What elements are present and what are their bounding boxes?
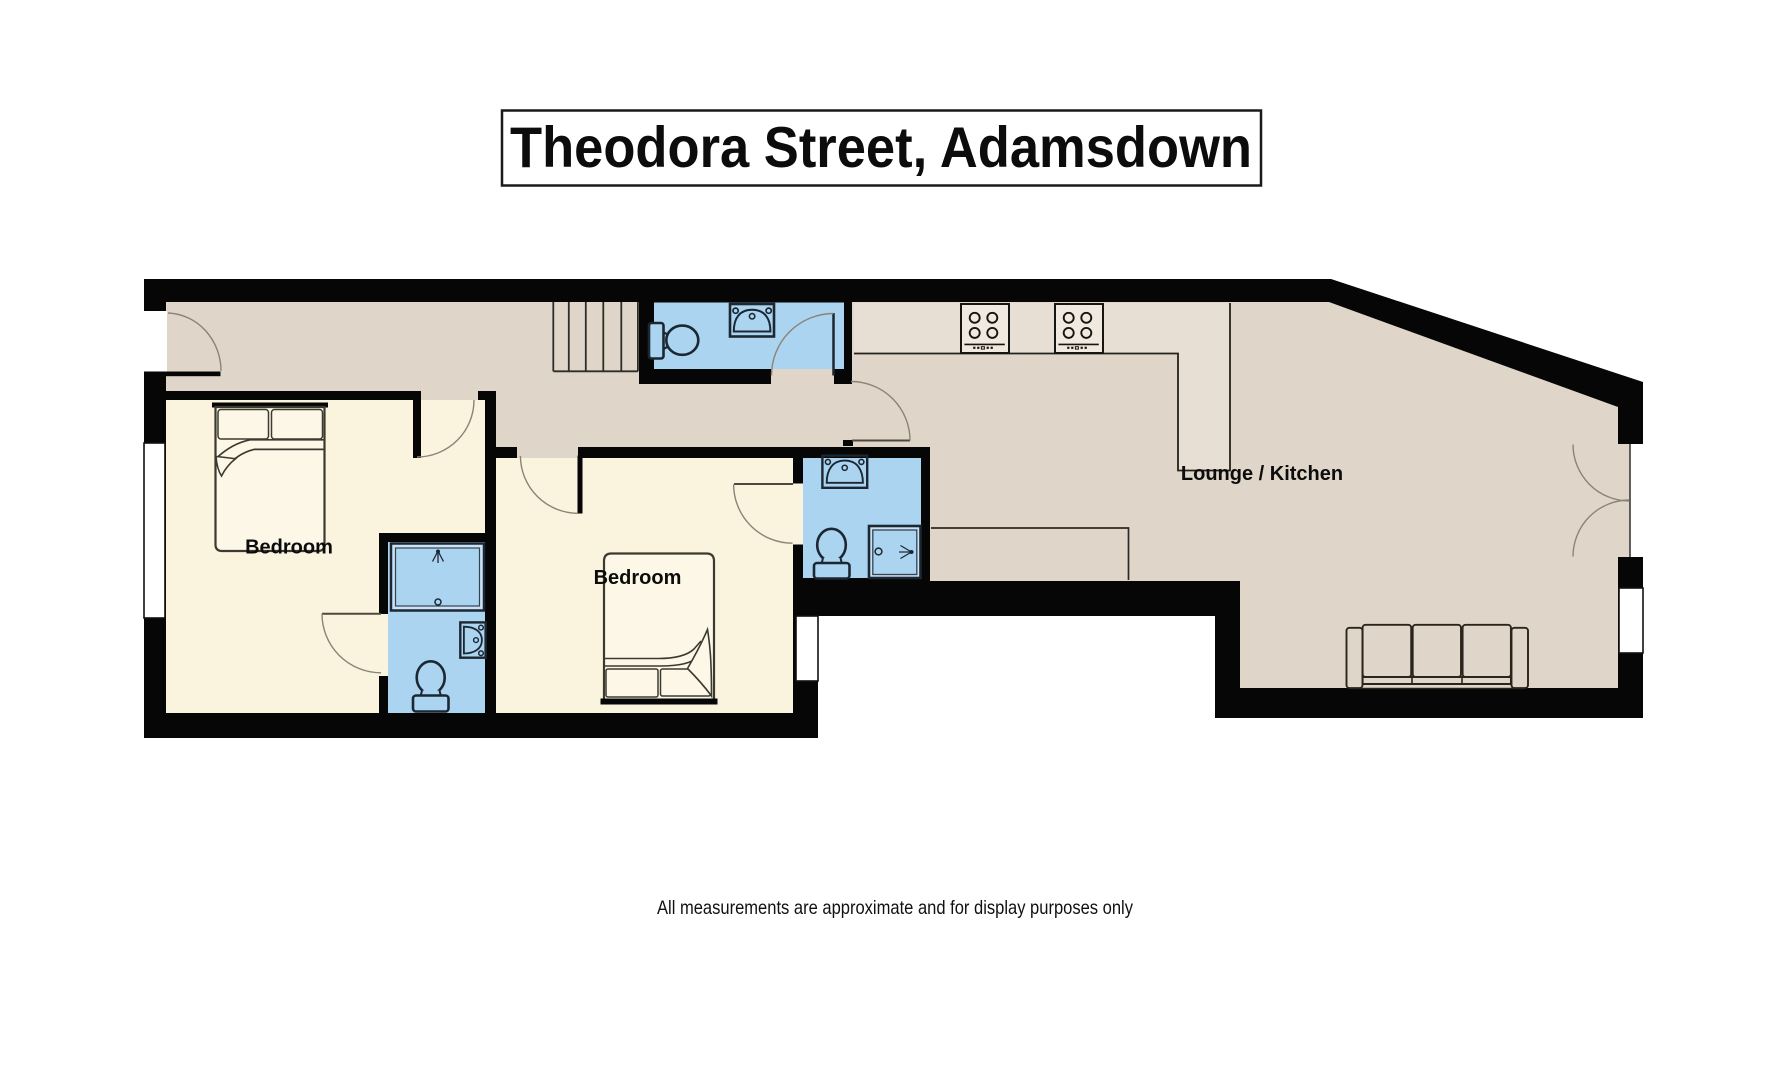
svg-text:Lounge / Kitchen: Lounge / Kitchen [1181, 463, 1343, 485]
svg-text:All measurements are approxima: All measurements are approximate and for… [657, 897, 1133, 919]
svg-text:Bedroom: Bedroom [245, 537, 333, 559]
svg-text:Theodora Street, Adamsdown: Theodora Street, Adamsdown [510, 116, 1252, 180]
svg-text:Bedroom: Bedroom [594, 567, 682, 589]
